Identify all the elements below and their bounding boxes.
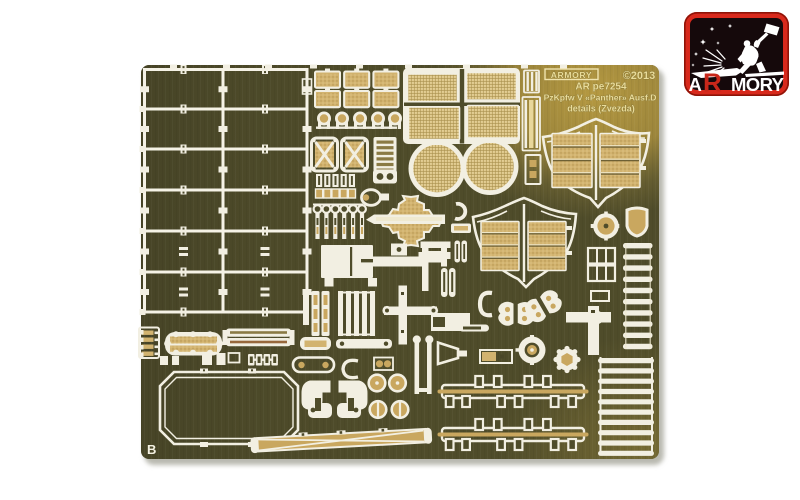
svg-text:ARMORY: ARMORY (551, 70, 592, 80)
svg-text:details (Zvezda): details (Zvezda) (567, 104, 635, 114)
svg-text:B: B (147, 442, 156, 457)
svg-text:©2013: ©2013 (623, 70, 656, 82)
svg-text:MORY: MORY (731, 74, 785, 95)
svg-text:PzKpfw V «Panther» Ausf.D: PzKpfw V «Panther» Ausf.D (544, 93, 657, 103)
svg-text:R: R (703, 68, 722, 98)
svg-text:AR pe7254: AR pe7254 (575, 82, 627, 93)
svg-text:A: A (689, 74, 702, 95)
